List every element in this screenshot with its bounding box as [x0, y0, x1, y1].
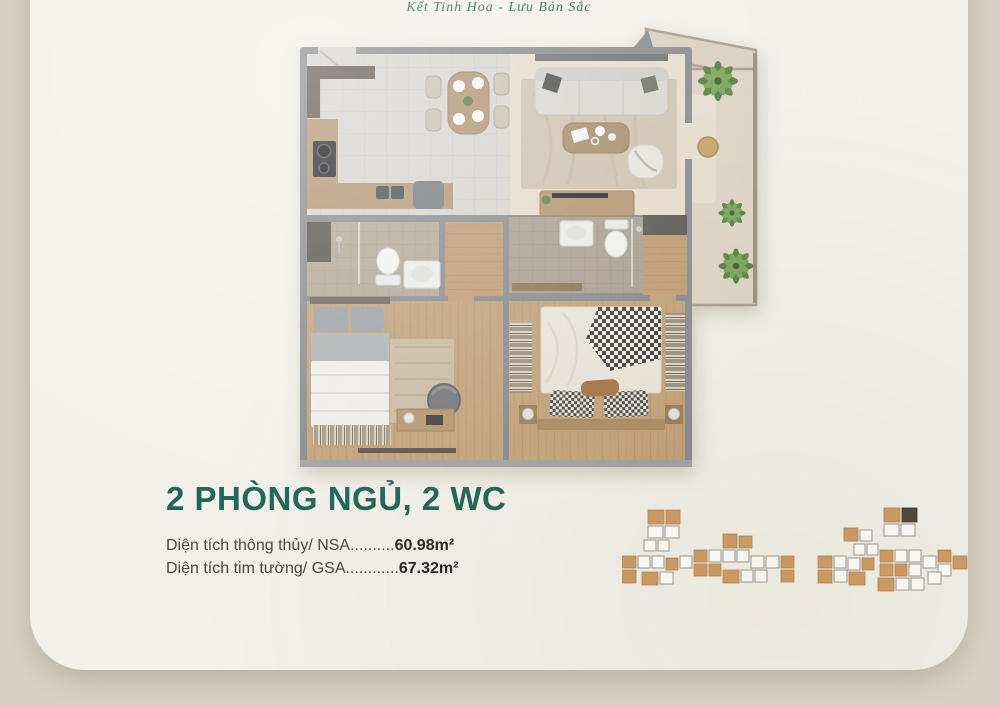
spec-row-nsa: Diện tích thông thủy/ NSA..........60.98… — [166, 534, 506, 557]
nightstand-right — [665, 405, 683, 424]
kitchen-dining — [307, 47, 510, 215]
page-background: THE EMERALD GRDEN VIEW Kết Tinh Hoa - Lư… — [0, 0, 1000, 706]
nightstand-left — [519, 405, 537, 424]
balcony-table — [698, 137, 718, 157]
master-bathroom — [509, 215, 687, 301]
coffee-table — [563, 123, 629, 153]
master-toilet — [605, 220, 628, 257]
toilet — [376, 248, 400, 285]
master-bedroom-door-opening — [650, 294, 676, 301]
tv-console — [540, 191, 634, 216]
armchair — [628, 145, 663, 178]
spec-label: Diện tích thông thủy/ NSA — [166, 537, 350, 554]
bathroom-sink — [404, 261, 440, 288]
corridor — [445, 222, 503, 301]
key-plan-block-1 — [622, 510, 794, 585]
unit-info: 2 PHÒNG NGỦ, 2 WC Diện tích thông thủy/ … — [166, 480, 506, 580]
master-wardrobe-left — [510, 323, 532, 393]
wardrobe-clothes — [313, 425, 391, 445]
curtain-box — [535, 54, 668, 61]
kitchen-island — [413, 181, 444, 209]
floorplan-render — [298, 23, 773, 468]
accent-pillow — [580, 379, 619, 398]
bedroom-2 — [307, 297, 503, 460]
bathroom-2 — [307, 222, 440, 296]
brand-tagline: Kết Tinh Hoa - Lưu Bản Sắc — [30, 0, 968, 16]
unit-headline: 2 PHÒNG NGỦ, 2 WC — [166, 480, 506, 518]
hall-closet — [643, 215, 687, 235]
spec-dots: .......... — [350, 537, 394, 554]
floorplan-svg — [298, 23, 773, 468]
balcony-railing — [753, 53, 757, 303]
spec-value: 67.32m² — [399, 560, 459, 577]
key-plan-block-2 — [818, 508, 967, 591]
kitchen-sink — [376, 186, 389, 199]
bedroom2-door-opening — [448, 294, 474, 301]
bedroom2-desk — [397, 409, 454, 431]
headboard — [537, 419, 665, 430]
bath2-niche — [307, 222, 331, 262]
sofa — [535, 68, 668, 115]
living-room — [510, 54, 692, 216]
flyer-card: THE EMERALD GRDEN VIEW Kết Tinh Hoa - Lư… — [30, 0, 968, 670]
current-unit-marker — [902, 508, 917, 522]
wardrobe-rail — [358, 448, 456, 453]
hall-floor — [643, 235, 687, 295]
balcony-door-opening — [685, 123, 692, 159]
spec-dots: ............ — [345, 560, 398, 577]
spec-value: 60.98m² — [395, 537, 455, 554]
master-wardrobe-right — [665, 313, 685, 391]
bath-shelf — [512, 283, 582, 291]
site-key-plan — [622, 506, 998, 602]
brand-logo: THE EMERALD GRDEN VIEW Kết Tinh Hoa - Lư… — [30, 0, 968, 16]
spec-label: Diện tích tim tường/ GSA — [166, 560, 345, 577]
palm-plant-icon — [698, 61, 738, 101]
palm-plant-icon — [718, 199, 745, 226]
master-shower-glass — [631, 219, 633, 287]
spec-row-gsa: Diện tích tim tường/ GSA............67.3… — [166, 557, 506, 580]
master-bedroom — [509, 301, 685, 460]
master-sink — [560, 221, 593, 246]
master-shower-head — [636, 226, 642, 232]
palm-plant-icon — [718, 248, 753, 283]
key-plan-svg — [622, 506, 998, 602]
tv — [552, 193, 608, 198]
shower-glass — [358, 222, 360, 284]
